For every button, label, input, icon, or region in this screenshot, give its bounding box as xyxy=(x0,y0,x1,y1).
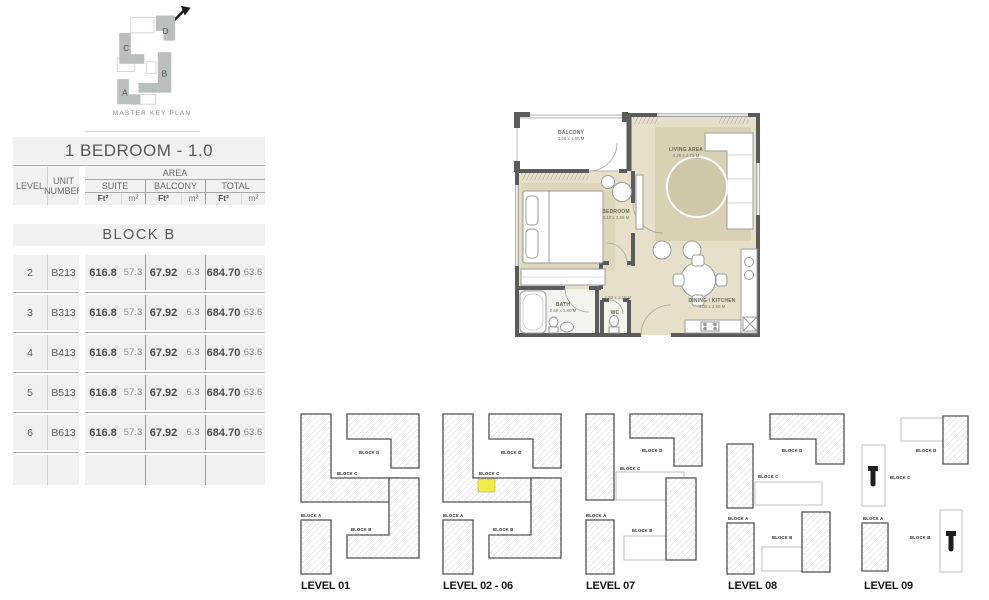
divider xyxy=(85,131,200,132)
room-dims-balcony: 3.66 x 1.66 M xyxy=(558,136,585,141)
pillow xyxy=(526,196,538,225)
block-shape xyxy=(755,482,822,505)
cell-level: 2 xyxy=(13,255,47,290)
cell-balcony-m: 6.3 xyxy=(181,415,205,450)
master-key-plan-drawing: D C B A xyxy=(96,2,208,110)
cell-level: 4 xyxy=(13,335,47,370)
cell-balcony-m: 6.3 xyxy=(181,255,205,290)
chair xyxy=(673,274,684,286)
cell-unit-number: B413 xyxy=(47,335,79,370)
table-row: 4B413616.857.367.926.3684.7063.6 xyxy=(13,335,265,370)
level-caption: LEVEL 09 xyxy=(864,580,913,592)
chair xyxy=(692,255,704,266)
block-shape xyxy=(901,418,943,441)
level-caption: LEVEL 07 xyxy=(586,580,635,592)
block-label: BLOCK C xyxy=(337,471,357,476)
cell-unit-number: B313 xyxy=(47,295,79,330)
mkp-letter-a: A xyxy=(122,89,128,98)
brochure-page: D C B A MASTER KEY PLAN 1 BEDROOM - 1.0 … xyxy=(0,0,989,600)
kitchen-sink xyxy=(745,258,754,267)
master-key-plan: D C B A MASTER KEY PLAN xyxy=(96,2,208,130)
block-label: BLOCK C xyxy=(758,474,778,479)
armchair xyxy=(653,241,671,259)
cell-balcony-m: 6.3 xyxy=(181,375,205,410)
col-header-unit-number: UNIT NUMBER xyxy=(47,167,79,205)
level-plan: BLOCK DBLOCK CBLOCK ABLOCK B xyxy=(295,408,430,578)
cell-empty xyxy=(121,455,145,485)
col-header-total-m: m² xyxy=(241,193,265,204)
level-plan: BLOCK DBLOCK CBLOCK ABLOCK B xyxy=(437,408,572,578)
level-plan: BLOCK DBLOCK CBLOCK ABLOCK B xyxy=(580,408,715,578)
col-header-area-group: AREA SUITE BALCONY TOTAL Ft² m² Ft² m² F… xyxy=(85,167,265,205)
highlight-unit xyxy=(478,479,495,492)
block-shape xyxy=(624,536,666,560)
cell-balcony-ft: 67.92 xyxy=(145,415,181,450)
cell-total-ft: 684.70 xyxy=(205,335,241,370)
mkp-letter-c: C xyxy=(123,44,129,53)
col-header-total-ft: Ft² xyxy=(205,193,241,204)
cell-empty xyxy=(241,455,265,485)
block-label: BLOCK B xyxy=(493,527,513,532)
cell-empty xyxy=(181,455,205,485)
cell-empty xyxy=(47,455,79,485)
cell-balcony-ft: 67.92 xyxy=(145,335,181,370)
room-dims-living: 4.28 x 4.75 M xyxy=(673,153,700,158)
bathtub xyxy=(520,291,546,333)
cell-balcony-m: 6.3 xyxy=(181,295,205,330)
cell-empty xyxy=(145,455,181,485)
level-caption: LEVEL 01 xyxy=(301,580,350,592)
cell-total-ft: 684.70 xyxy=(205,295,241,330)
cell-level: 5 xyxy=(13,375,47,410)
table-row-empty xyxy=(13,455,265,485)
table-row: 2B213616.857.367.926.3684.7063.6 xyxy=(13,255,265,290)
table-row: 6B613616.857.367.926.3684.7063.6 xyxy=(13,415,265,450)
curtain-strip xyxy=(633,117,659,124)
toilet-tank xyxy=(549,327,558,333)
block-label: BLOCK A xyxy=(443,513,463,518)
cell-balcony-ft: 67.92 xyxy=(145,295,181,330)
block-label: BLOCK B xyxy=(632,528,652,533)
level-plan: BLOCK DBLOCK CBLOCK ABLOCK B xyxy=(722,408,857,578)
level-plan: BLOCK DBLOCK CBLOCK ABLOCK B xyxy=(858,408,989,578)
tv-console xyxy=(636,175,643,229)
block-label: BLOCK A xyxy=(586,513,606,518)
cell-suite-m: 57.3 xyxy=(121,255,145,290)
wc-toilet xyxy=(610,316,619,327)
col-header-total: TOTAL xyxy=(205,180,265,192)
cell-empty xyxy=(85,455,121,485)
cell-total-m: 63.6 xyxy=(241,335,265,370)
cell-suite-ft: 616.8 xyxy=(85,335,121,370)
block-label: BLOCK B xyxy=(772,535,792,540)
block-label: BLOCK B xyxy=(910,535,930,540)
block-label: BLOCK C xyxy=(479,471,499,476)
cell-suite-ft: 616.8 xyxy=(85,415,121,450)
col-header-suite: SUITE xyxy=(85,180,145,192)
room-dims-hall: 1.52 x 1.10 M xyxy=(605,295,632,300)
master-key-plan-caption: MASTER KEY PLAN xyxy=(96,110,208,117)
table-title: 1 BEDROOM - 1.0 xyxy=(13,137,265,164)
cell-suite-ft: 616.8 xyxy=(85,295,121,330)
room-dims-bath: 2.60 x 1.80 M xyxy=(550,308,577,313)
table-row: 3B313616.857.367.926.3684.7063.6 xyxy=(13,295,265,330)
cell-suite-m: 57.3 xyxy=(121,295,145,330)
col-header-balcony: BALCONY xyxy=(145,180,205,192)
chair xyxy=(716,274,727,286)
mkp-letter-d: D xyxy=(163,27,169,36)
col-header-area: AREA xyxy=(85,167,265,180)
col-header-level: LEVEL xyxy=(13,167,47,205)
block-label: BLOCK D xyxy=(782,448,802,453)
cell-empty xyxy=(205,455,241,485)
wc-toilet-tank xyxy=(609,327,619,333)
block-label: BLOCK C xyxy=(890,475,910,480)
cell-total-ft: 684.70 xyxy=(205,255,241,290)
cell-empty xyxy=(13,455,47,485)
floor-plan: BALCONY 3.66 x 1.66 M LIVING AREA 4.28 x… xyxy=(505,103,770,345)
block-label: BLOCK A xyxy=(728,516,748,521)
section-header-block-b: BLOCK B xyxy=(13,224,265,246)
room-dims-bedroom: 4.10 x 3.65 M xyxy=(603,215,630,220)
cell-unit-number: B613 xyxy=(47,415,79,450)
cell-suite-m: 57.3 xyxy=(121,415,145,450)
block-label: BLOCK A xyxy=(863,516,883,521)
block-label: BLOCK D xyxy=(359,450,379,455)
armchair xyxy=(613,183,632,202)
cell-balcony-ft: 67.92 xyxy=(145,375,181,410)
cell-suite-ft: 616.8 xyxy=(85,255,121,290)
level-caption: LEVEL 02 - 06 xyxy=(443,580,513,592)
sink xyxy=(561,322,574,332)
cell-unit-number: B213 xyxy=(47,255,79,290)
unit-table: 1 BEDROOM - 1.0 LEVEL UNIT NUMBER AREA S… xyxy=(13,137,265,485)
curtain-strip xyxy=(521,173,589,180)
block-label: BLOCK D xyxy=(642,448,662,453)
pillow xyxy=(526,229,538,258)
divider xyxy=(13,165,265,166)
cell-balcony-m: 6.3 xyxy=(181,335,205,370)
side-table xyxy=(602,176,615,189)
block-label: BLOCK A xyxy=(301,513,321,518)
block-label: BLOCK D xyxy=(916,448,936,453)
cell-unit-number: B513 xyxy=(47,375,79,410)
col-header-balcony-m: m² xyxy=(181,193,205,204)
round-rug xyxy=(667,157,727,217)
cell-suite-m: 57.3 xyxy=(121,335,145,370)
cell-suite-ft: 616.8 xyxy=(85,375,121,410)
cell-total-ft: 684.70 xyxy=(205,375,241,410)
cell-total-ft: 684.70 xyxy=(205,415,241,450)
mkp-letter-b: B xyxy=(162,69,168,78)
cell-total-m: 63.6 xyxy=(241,415,265,450)
cell-balcony-ft: 67.92 xyxy=(145,255,181,290)
col-header-suite-m: m² xyxy=(121,193,145,204)
cell-level: 6 xyxy=(13,415,47,450)
cell-total-m: 63.6 xyxy=(241,255,265,290)
toilet xyxy=(549,317,558,327)
table-rows: 2B213616.857.367.926.3684.7063.63B313616… xyxy=(13,255,265,485)
kitchen-sink xyxy=(745,271,754,280)
block-label: BLOCK B xyxy=(351,527,371,532)
block-label: BLOCK D xyxy=(501,450,521,455)
col-header-balcony-ft: Ft² xyxy=(145,193,181,204)
table-header: LEVEL UNIT NUMBER AREA SUITE BALCONY TOT… xyxy=(13,167,265,205)
cell-suite-m: 57.3 xyxy=(121,375,145,410)
dining-table xyxy=(681,263,716,298)
cell-level: 3 xyxy=(13,295,47,330)
balcony xyxy=(517,115,627,171)
block-label: BLOCK C xyxy=(620,466,640,471)
shelf-strip xyxy=(719,117,749,124)
block-shape xyxy=(762,547,802,571)
cell-total-m: 63.6 xyxy=(241,295,265,330)
room-dims-dining: 4.00 x 3.50 M xyxy=(699,304,726,309)
col-header-suite-ft: Ft² xyxy=(85,193,121,204)
room-label-wc: WC xyxy=(611,310,620,316)
level-caption: LEVEL 08 xyxy=(728,580,777,592)
cell-total-m: 63.6 xyxy=(241,375,265,410)
table-row: 5B513616.857.367.926.3684.7063.6 xyxy=(13,375,265,410)
